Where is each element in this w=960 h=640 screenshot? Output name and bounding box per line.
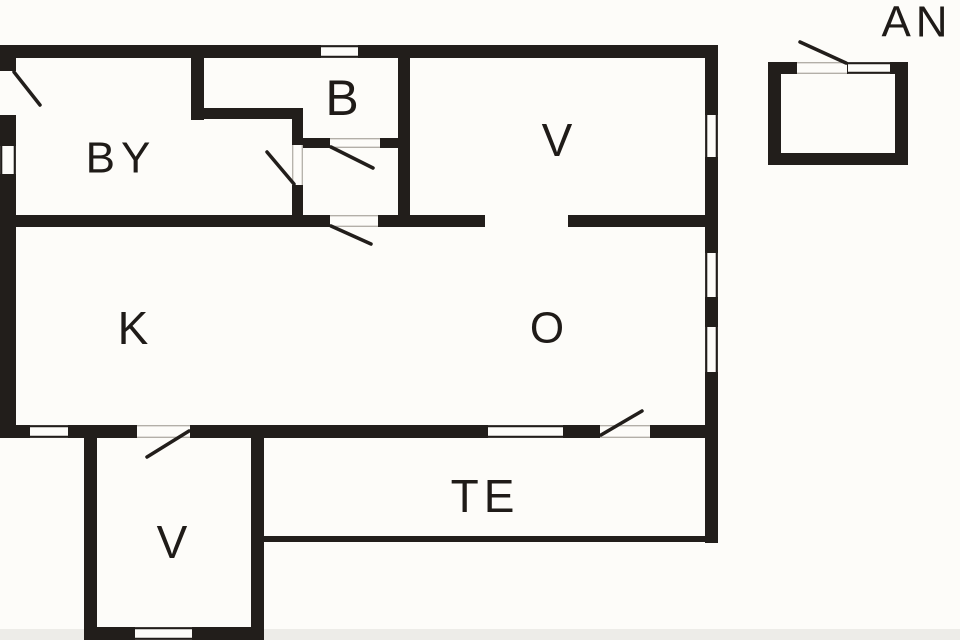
wall-an-bottom	[768, 153, 908, 165]
wall-b-v-divider	[398, 45, 410, 227]
wall-room-divider-right	[568, 215, 705, 227]
door-gap-vestibule-k	[330, 215, 378, 227]
room-label-b: B	[325, 70, 358, 126]
wall-v2-right-te-left	[251, 425, 264, 640]
wall-main-top	[0, 45, 718, 58]
wall-te-bottom-edge	[264, 536, 712, 542]
wall-v2-left	[84, 425, 97, 640]
room-label-o: O	[530, 304, 564, 353]
window-left-by	[0, 146, 16, 174]
wall-room-divider-left	[0, 215, 485, 227]
room-label-te: TE	[451, 470, 520, 522]
door-gap-an	[797, 62, 847, 74]
door-gap-b	[330, 138, 380, 148]
wall-an-right	[895, 62, 908, 165]
room-label-v-bottom: V	[157, 516, 188, 568]
door-gap-by-vestibule	[292, 145, 303, 185]
opening-v-o	[485, 215, 568, 227]
wall-an-left	[768, 62, 781, 165]
annex-label-an: AN	[881, 0, 952, 47]
room-label-v-top: V	[542, 114, 573, 166]
door-gap-entrance-by	[0, 71, 16, 115]
room-label-by: BY	[86, 134, 157, 183]
room-label-k: K	[118, 302, 149, 354]
floorplan-canvas: BY B V K O TE V AN	[0, 0, 960, 640]
floorplan-svg: BY B V K O TE V AN	[0, 0, 960, 640]
wall-b-nook	[191, 108, 303, 119]
